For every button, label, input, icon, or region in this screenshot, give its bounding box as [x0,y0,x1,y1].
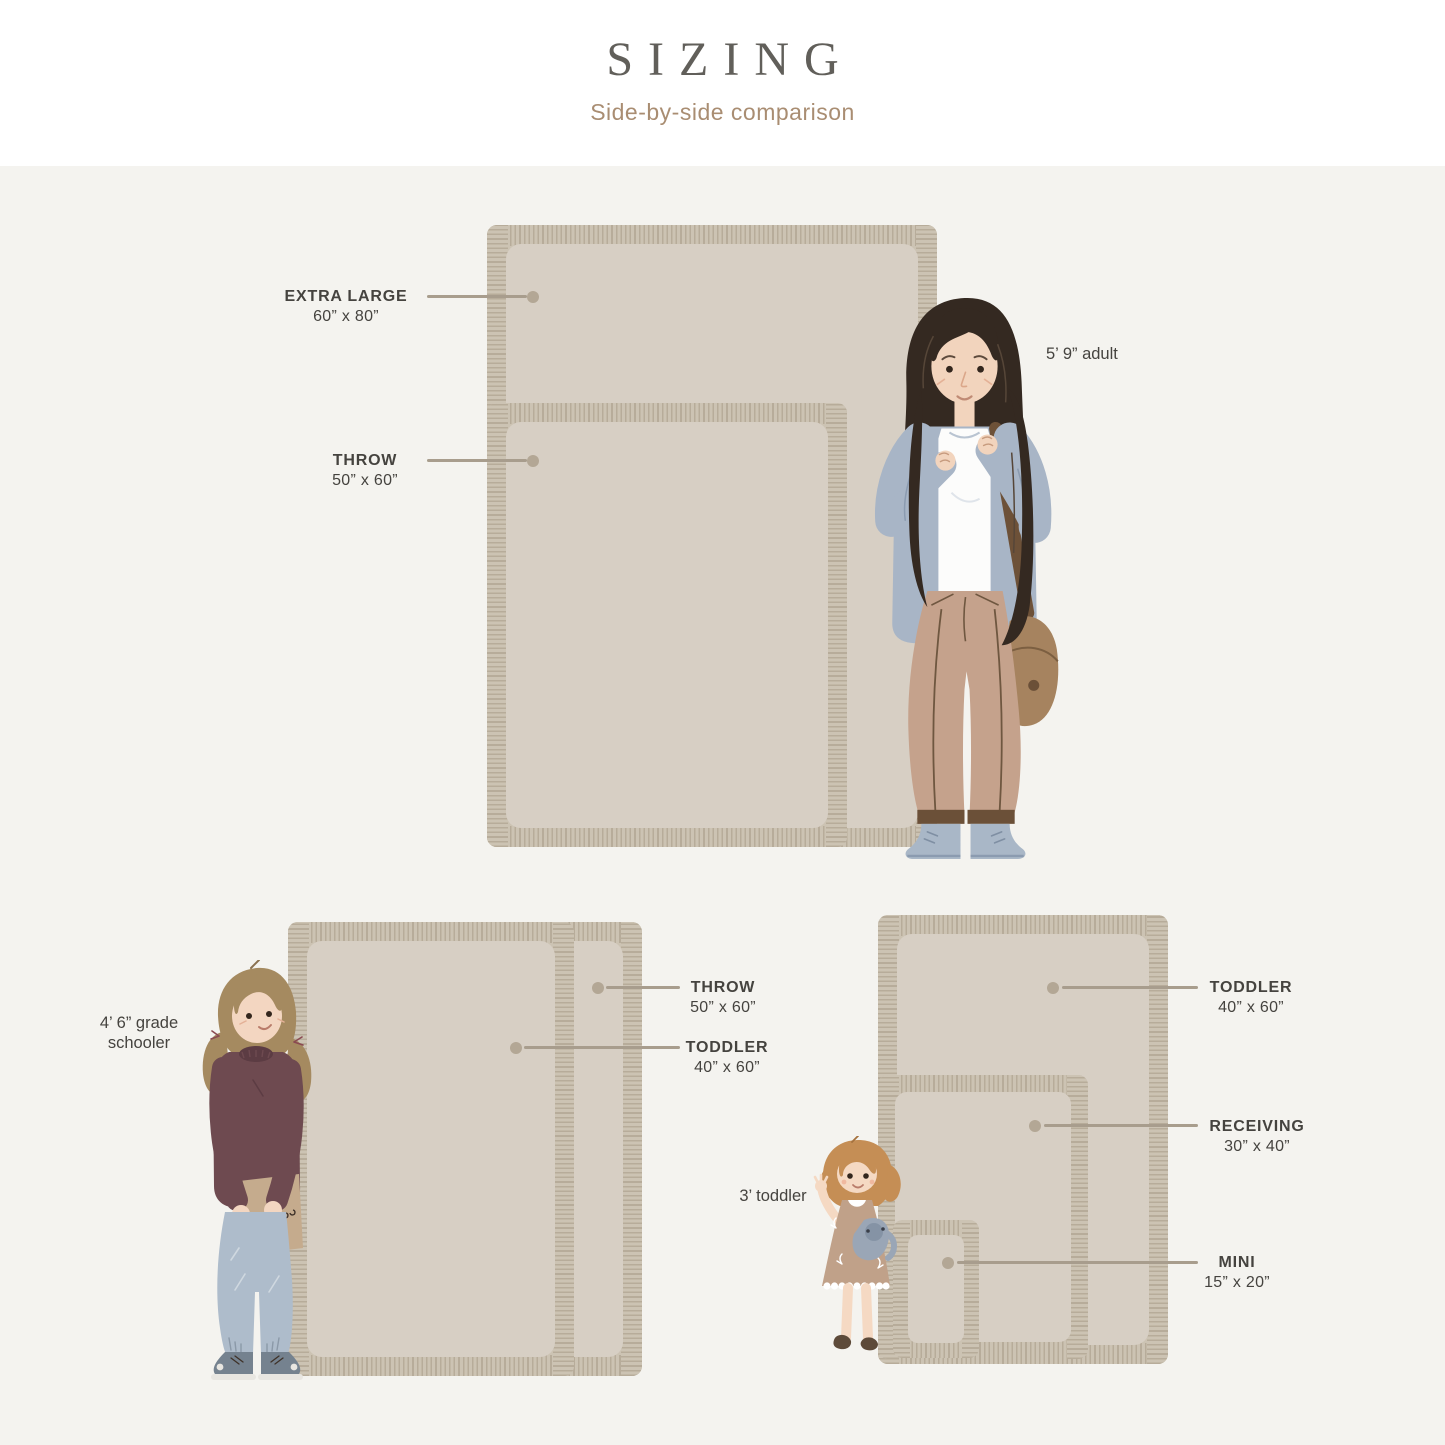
size-dimensions: 50” x 60” [643,998,803,1018]
size-dimensions: 30” x 40” [1177,1137,1337,1157]
woman-pants [908,591,1021,824]
leader-dot-extra-large [527,291,539,303]
size-name: EXTRA LARGE [246,287,446,307]
leader-dot-toddler-bottom-left [510,1042,522,1054]
size-dimensions: 40” x 60” [1171,998,1331,1018]
blanket-fringe [962,1220,979,1358]
blanket-fringe [487,403,508,847]
girl-jeans [217,1212,293,1354]
size-name: RECEIVING [1177,1117,1337,1137]
adult-woman-illustration [860,292,1068,864]
figure-label-line1: 4’ 6” grade [39,1013,239,1033]
label-throw-top: THROW 50” x 60” [265,451,465,491]
woman-face [930,308,998,403]
blanket-fringe [487,403,847,424]
label-throw-bottom: THROW 50” x 60” [643,978,803,1018]
figure-label-adult: 5’ 9” adult [1046,344,1118,364]
blanket-fringe [621,922,642,1376]
blanket-fringe [553,922,574,1376]
header: SIZING Side-by-side comparison [0,0,1445,166]
leader-dot-toddler-bottom-right [1047,982,1059,994]
page-title: SIZING [0,0,1445,84]
blanket-toddler-bottom-left [288,922,574,1376]
blanket-fringe [288,922,574,943]
leader-line-toddler-bottom-right [1062,986,1198,989]
size-dimensions: 60” x 80” [246,307,446,327]
toddler-child-illustration [806,1136,910,1368]
size-dimensions: 50” x 60” [265,471,465,491]
leader-line-mini [957,1261,1198,1264]
toddler-legs-shoes [833,1288,878,1350]
label-toddler-bottom-left: TODDLER 40” x 60” [647,1038,807,1078]
blanket-fringe [1147,915,1168,1364]
blanket-fringe [878,915,1168,936]
leader-dot-throw-top [527,455,539,467]
figure-label-toddler: 3’ toddler [693,1186,853,1206]
leader-dot-mini [942,1257,954,1269]
blanket-fringe [826,403,847,847]
girl-sneakers [211,1352,303,1380]
size-dimensions: 15” x 20” [1157,1273,1317,1293]
page-subtitle: Side-by-side comparison [0,84,1445,126]
woman-boots [906,824,1026,859]
figure-label-line2: schooler [39,1033,239,1053]
figure-label-grade-schooler: 4’ 6” grade schooler [39,1013,239,1053]
leader-line-throw-bottom [606,986,680,989]
leader-dot-throw-bottom [592,982,604,994]
girl-face [232,974,284,1043]
label-extra-large: EXTRA LARGE 60” x 80” [246,287,446,327]
blanket-throw-top [487,403,847,847]
blanket-inner [506,422,828,828]
blanket-fringe [487,826,847,847]
blanket-fringe [288,1355,574,1376]
label-mini: MINI 15” x 20” [1157,1253,1317,1293]
label-toddler-bottom-right: TODDLER 40” x 60” [1171,978,1331,1018]
sizing-infographic: SIZING Side-by-side comparison [0,0,1445,1445]
leader-line-receiving [1044,1124,1198,1127]
size-dimensions: 40” x 60” [647,1058,807,1078]
blanket-fringe [487,225,937,246]
blanket-inner [307,941,555,1357]
leader-dot-receiving [1029,1120,1041,1132]
leader-line-toddler-bottom-left [524,1046,680,1049]
label-receiving: RECEIVING 30” x 40” [1177,1117,1337,1157]
leader-line-throw-top [427,459,527,462]
blanket-inner [908,1235,964,1343]
leader-line-extra-large [427,295,527,298]
